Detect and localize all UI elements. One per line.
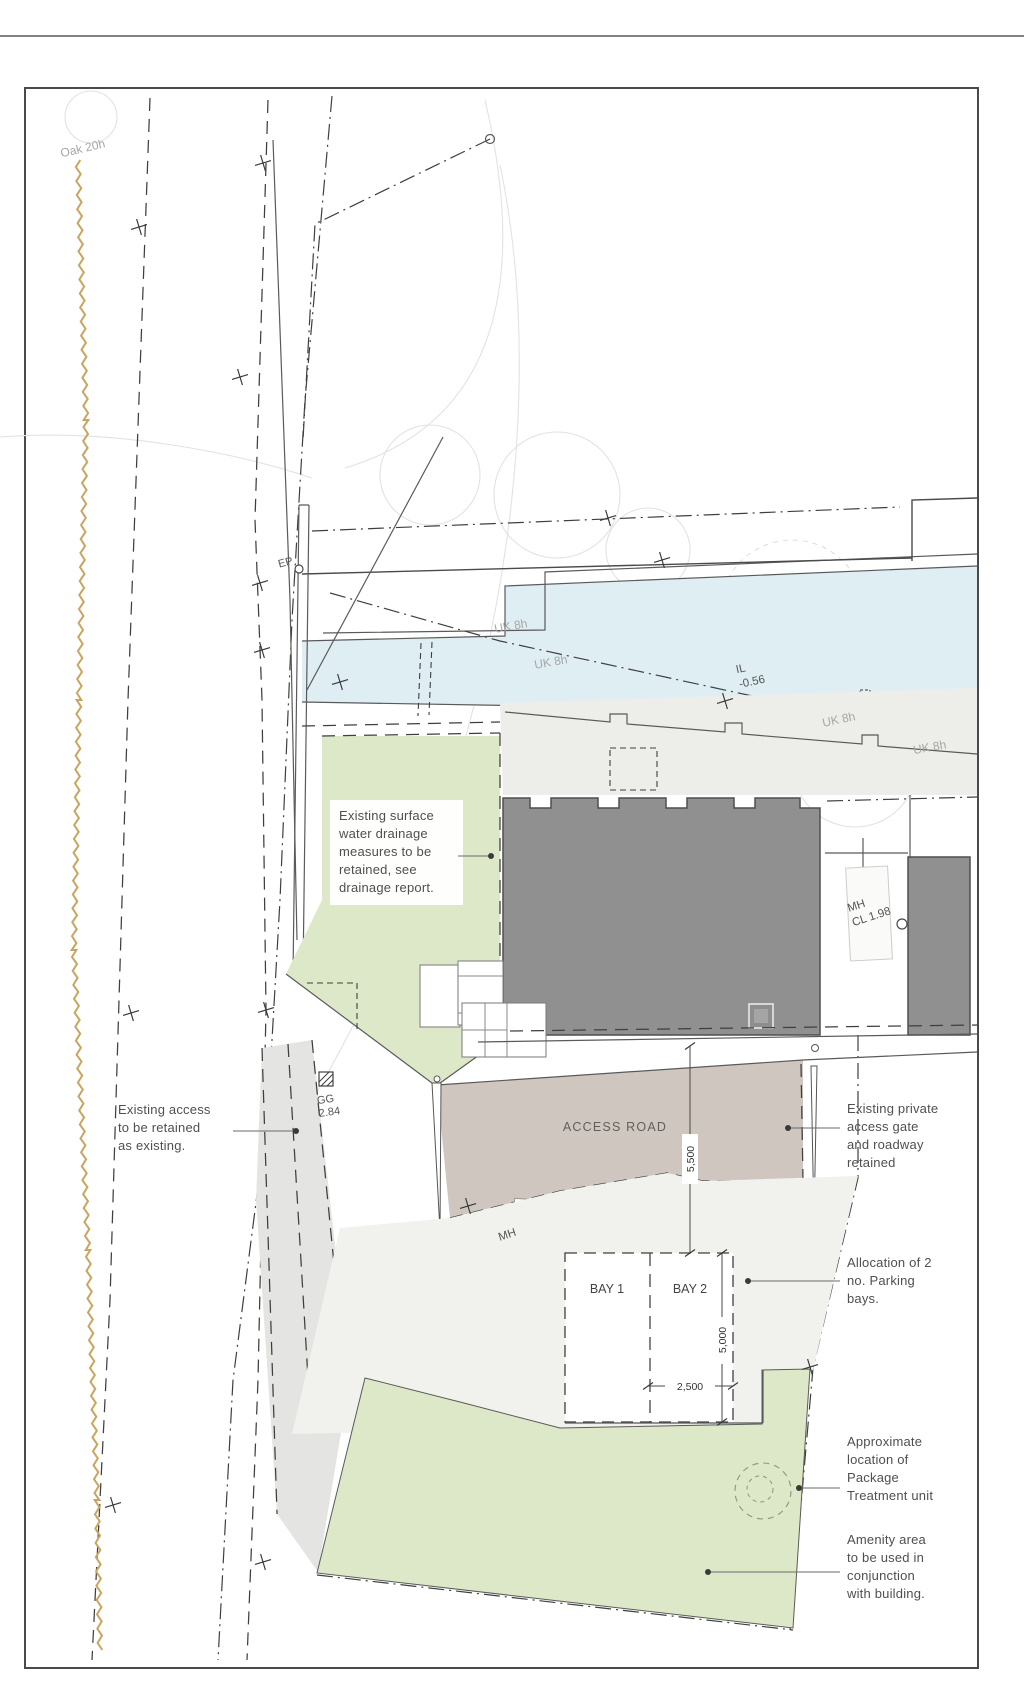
access-road-label: ACCESS ROAD bbox=[563, 1120, 667, 1134]
bay1-label: BAY 1 bbox=[590, 1282, 624, 1296]
dim-bay-depth: 5,000 bbox=[717, 1327, 729, 1353]
adjacent-building bbox=[908, 857, 970, 1035]
annotation-treatment-unit: Approximatelocation ofPackageTreatment u… bbox=[796, 1434, 933, 1503]
hedgerow-line bbox=[72, 160, 103, 1650]
gully-marker: GG2.84 bbox=[316, 1072, 341, 1120]
bay2-label: BAY 2 bbox=[673, 1282, 707, 1296]
site-plan-drawing: 5,500 5,000 2,500 EP GG2.84 Oak 20h UK bbox=[0, 0, 1024, 1707]
rooflight-square bbox=[749, 1004, 773, 1028]
parking-bays-outline bbox=[565, 1253, 763, 1423]
svg-text:Allocation of 2no. Parkingbays: Allocation of 2no. Parkingbays. bbox=[847, 1255, 932, 1306]
annotation-private-gate: Existing privateaccess gateand roadwayre… bbox=[785, 1101, 938, 1170]
stream-water-area bbox=[302, 554, 977, 707]
main-building bbox=[503, 798, 820, 1035]
svg-text:Approximatelocation ofPackageT: Approximatelocation ofPackageTreatment u… bbox=[847, 1434, 933, 1503]
svg-text:Existing accessto be retaineda: Existing accessto be retainedas existing… bbox=[118, 1102, 211, 1153]
site-plan-page: 5,500 5,000 2,500 EP GG2.84 Oak 20h UK bbox=[0, 0, 1024, 1707]
ep-label: EP bbox=[277, 555, 294, 570]
gate-left bbox=[432, 1076, 441, 1231]
svg-text:Amenity areato be used inconju: Amenity areato be used inconjunctionwith… bbox=[846, 1532, 927, 1601]
oak-tree-label: Oak 20h bbox=[59, 136, 106, 160]
north-apron bbox=[500, 688, 977, 795]
gg-label: GG2.84 bbox=[316, 1092, 341, 1120]
ep-marker: EP bbox=[277, 555, 303, 573]
svg-text:Existing surfacewater drainage: Existing surfacewater drainagemeasures t… bbox=[338, 808, 434, 895]
dim-bay-width: 2,500 bbox=[677, 1381, 703, 1393]
svg-text:Existing privateaccess gateand: Existing privateaccess gateand roadwayre… bbox=[847, 1101, 938, 1170]
dim-building-to-bays: 5,500 bbox=[685, 1146, 697, 1172]
